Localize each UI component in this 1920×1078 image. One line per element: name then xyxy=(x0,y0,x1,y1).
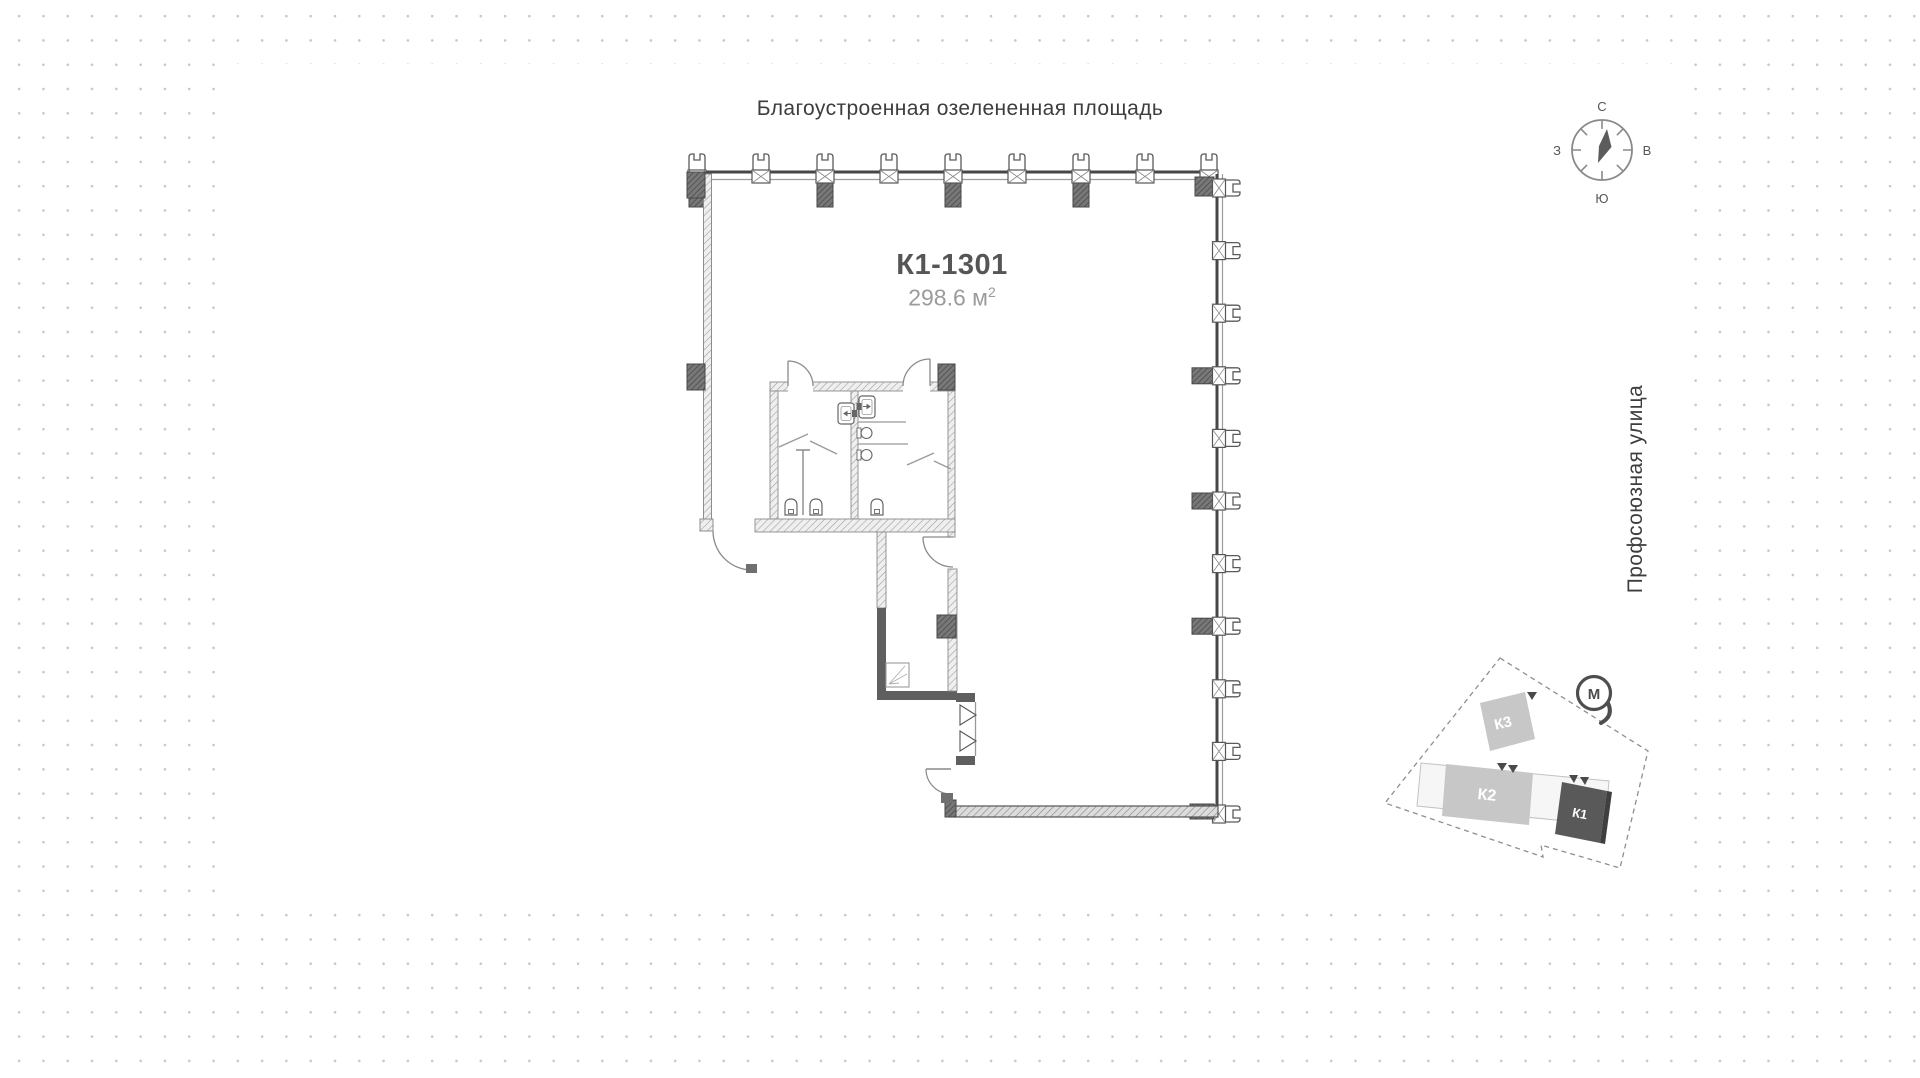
compass-icon: С В Ю З xyxy=(1553,99,1651,206)
site-building-k1[interactable]: К1 xyxy=(1555,782,1612,844)
bathroom-block xyxy=(755,359,955,537)
toilet-icon xyxy=(785,499,797,515)
compass-east-label: В xyxy=(1643,143,1652,158)
site-building-k3[interactable]: К3 xyxy=(1480,692,1535,751)
site-building-k1-label: К1 xyxy=(1571,805,1589,823)
entrance-door xyxy=(956,693,976,765)
site-building-k2-label: К2 xyxy=(1477,786,1497,805)
wall-right xyxy=(1190,174,1240,823)
floor-plan-svg: С В Ю З К3 К2 К1 xyxy=(0,0,1920,1078)
metro-icon: М xyxy=(1578,677,1611,724)
entrance-corridor xyxy=(877,532,976,803)
shaft-symbol xyxy=(886,663,909,687)
compass-north-label: С xyxy=(1597,99,1606,114)
wall-left xyxy=(687,172,713,531)
door-corridor xyxy=(923,537,953,567)
page-background: { "labels": { "top_area": "Благоустроенн… xyxy=(0,0,1920,1078)
toilet-icon xyxy=(871,499,883,515)
door-bottom xyxy=(926,769,953,803)
sink-icon xyxy=(838,403,857,424)
wall-top xyxy=(688,154,1218,207)
unit-floor-plan xyxy=(687,154,1240,823)
toilet-icon xyxy=(810,499,822,515)
sink-icon xyxy=(857,396,876,418)
site-plan: К3 К2 К1 М xyxy=(1385,658,1648,868)
metro-label: М xyxy=(1588,686,1601,703)
compass-west-label: З xyxy=(1553,143,1561,158)
door-lower-left xyxy=(713,531,757,573)
compass-south-label: Ю xyxy=(1595,191,1608,206)
wall-bottom xyxy=(945,800,1218,817)
